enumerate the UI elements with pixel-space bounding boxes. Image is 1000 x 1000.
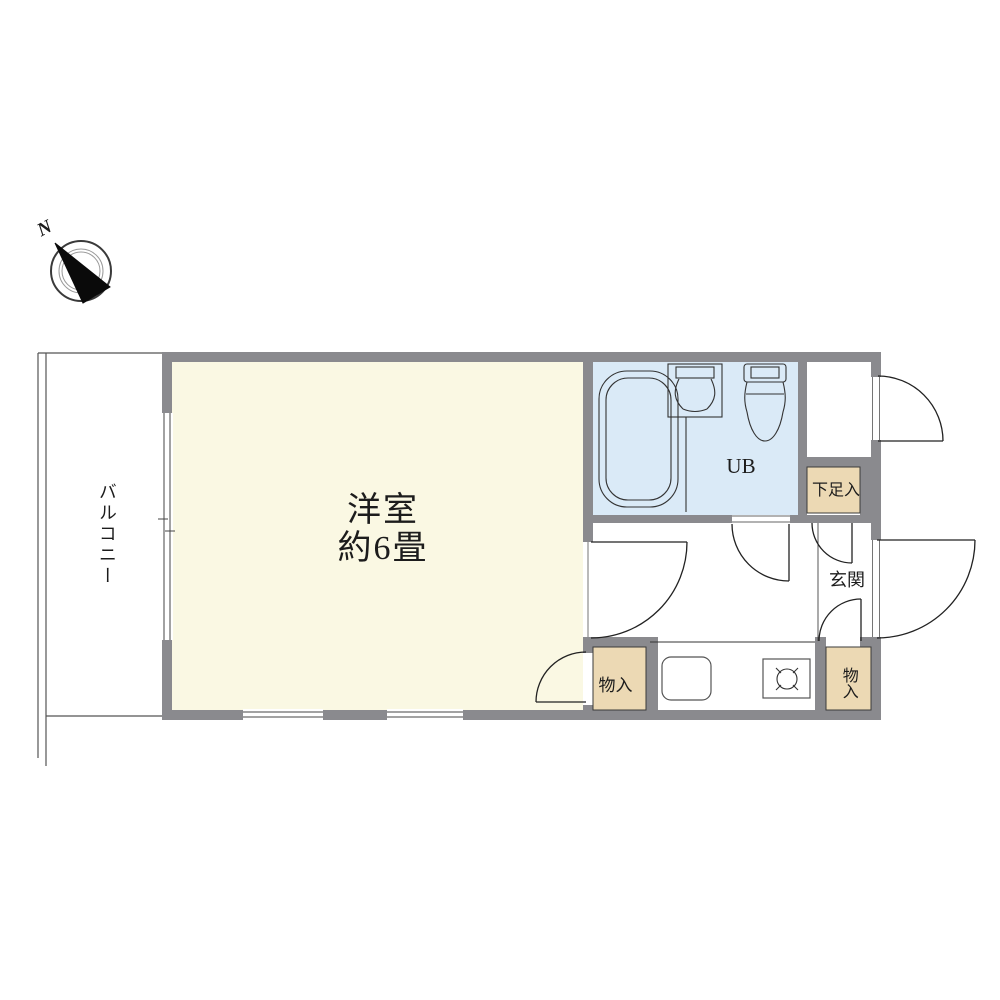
wall-bottom-2 bbox=[323, 710, 387, 720]
unit-bath-floor bbox=[593, 362, 798, 515]
wall-ub-bottom-right bbox=[790, 515, 871, 523]
entrance-label: 玄関 bbox=[821, 569, 873, 593]
wall-alcove-bottom bbox=[798, 457, 871, 467]
main-room-label-line1: 洋室 bbox=[347, 492, 419, 530]
window-bottom2-gap bbox=[387, 709, 463, 721]
wall-ub-right bbox=[798, 362, 807, 515]
window-left-gap bbox=[161, 413, 173, 640]
wall-mainroom-right-lower bbox=[583, 705, 593, 712]
wall-left-upper bbox=[162, 362, 172, 413]
alcove-door-arc bbox=[878, 376, 943, 441]
main-room-label: 洋室 約6畳 bbox=[255, 489, 511, 571]
wall-storage-right-top-a bbox=[815, 637, 826, 647]
storage-left-label: 物入 bbox=[589, 673, 642, 699]
wall-right-2 bbox=[871, 440, 881, 540]
wall-right-3 bbox=[871, 637, 881, 720]
shoe-storage-label: 下足入 bbox=[809, 480, 863, 502]
wall-top bbox=[162, 352, 881, 362]
wall-mainroom-right-upper bbox=[583, 362, 593, 542]
entrance-door bbox=[877, 540, 975, 638]
main-room-label-line2: 約6畳 bbox=[338, 530, 429, 568]
compass bbox=[51, 241, 111, 303]
wall-right-1 bbox=[871, 362, 881, 377]
stove-top bbox=[763, 659, 810, 698]
kitchen-sink bbox=[662, 657, 711, 700]
unit-bath-label: UB bbox=[711, 453, 771, 481]
wall-bottom-1 bbox=[162, 710, 243, 720]
alcove-door bbox=[878, 376, 943, 441]
wall-bottom-3 bbox=[463, 710, 881, 720]
storage-right-label: 物入 bbox=[832, 655, 864, 711]
wall-ub-bottom-left bbox=[593, 515, 732, 523]
wall-storage-right-left bbox=[815, 647, 826, 710]
window-bottom1-gap bbox=[243, 709, 323, 721]
floor-plan-page: 洋室 約6畳 バルコニー UB 下足入 玄関 物入 物入 N bbox=[0, 0, 1000, 1000]
balcony-label: バルコニー bbox=[86, 478, 126, 590]
wall-storage-left-right bbox=[646, 647, 658, 710]
wall-left-lower bbox=[162, 640, 172, 720]
entrance-door-arc bbox=[877, 540, 975, 638]
